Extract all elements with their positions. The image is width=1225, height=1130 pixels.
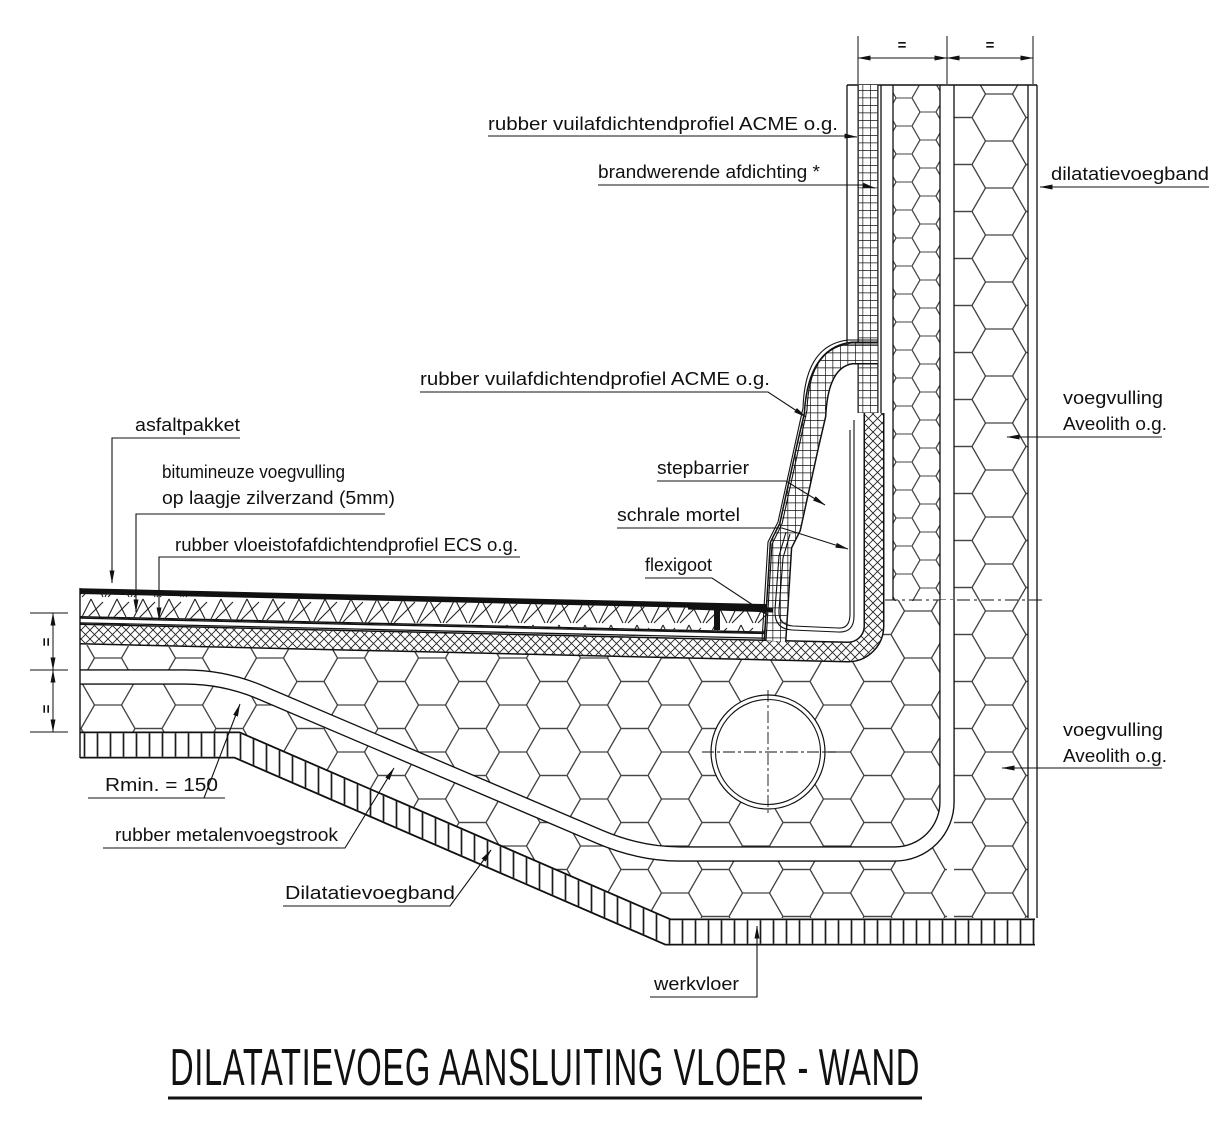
stepbarrier-text: stepbarrier: [657, 458, 749, 478]
dilatation-band-right-text: dilatatievoegband: [1051, 164, 1209, 184]
asphalt-layer: [80, 591, 773, 621]
drawing-sheet: = = = = rubber vuilafdichtendprofiel ACM…: [0, 0, 1225, 1130]
dimension-left: = =: [30, 613, 68, 732]
drawing-title: DILATATIEVOEG AANSLUITING VLOER - WAND: [168, 1039, 922, 1098]
dim-left-lower-equal: =: [37, 705, 54, 714]
wall-outer-leaf-hatch: [954, 85, 1028, 918]
mid-profile-text: rubber vuilafdichtendprofiel ACME o.g.: [420, 369, 770, 389]
bituminous-fill-line2: op laagje zilverzand (5mm): [162, 488, 395, 508]
label-top-profile: rubber vuilafdichtendprofiel ACME o.g.: [488, 114, 857, 137]
flexigoot-text: flexigoot: [645, 555, 712, 575]
label-lean-mortar: schrale mortel: [617, 505, 848, 549]
joint-fill-upper-line2: Aveolith o.g.: [1063, 414, 1167, 434]
fire-seal-text: brandwerende afdichting *: [598, 162, 820, 182]
rmin-text: Rmin. = 150: [105, 775, 218, 795]
label-fire-seal: brandwerende afdichting *: [598, 162, 875, 188]
dimension-top: = =: [858, 36, 1033, 84]
label-dilatation-band-right: dilatatievoegband: [1040, 164, 1209, 187]
label-mid-profile: rubber vuilafdichtendprofiel ACME o.g.: [420, 369, 806, 417]
joint-fill-upper-line1: voegvulling: [1063, 388, 1163, 408]
metal-joint-strip-text: rubber metalenvoegstrook: [115, 825, 339, 845]
label-dilatation-band-bottom: Dilatatievoegband: [283, 850, 491, 906]
dim-top-right-equal: =: [986, 37, 995, 54]
wall-inner-leaf-hatch: [893, 85, 940, 601]
top-profile-text: rubber vuilafdichtendprofiel ACME o.g.: [488, 114, 838, 134]
joint-fill-lower-line1: voegvulling: [1063, 720, 1163, 740]
liquid-seal-text: rubber vloeistofafdichtendprofiel ECS o.…: [175, 535, 518, 555]
label-joint-fill-upper: voegvulling Aveolith o.g.: [1007, 388, 1167, 437]
asphalt-text: asfaltpakket: [135, 415, 240, 435]
joint-fill-lower-line2: Aveolith o.g.: [1063, 746, 1167, 766]
dim-left-upper-equal: =: [37, 638, 54, 647]
bituminous-fill-line1: bitumineuze voegvulling: [162, 462, 345, 482]
dim-top-left-equal: =: [898, 37, 907, 54]
dilatation-band-bottom-text: Dilatatievoegband: [285, 883, 455, 903]
work-floor-text: werkvloer: [653, 974, 739, 994]
construction-detail-drawing: = = = = rubber vuilafdichtendprofiel ACM…: [0, 0, 1225, 1130]
lean-mortar-text: schrale mortel: [617, 505, 740, 525]
title-text: DILATATIEVOEG AANSLUITING VLOER - WAND: [170, 1039, 920, 1097]
